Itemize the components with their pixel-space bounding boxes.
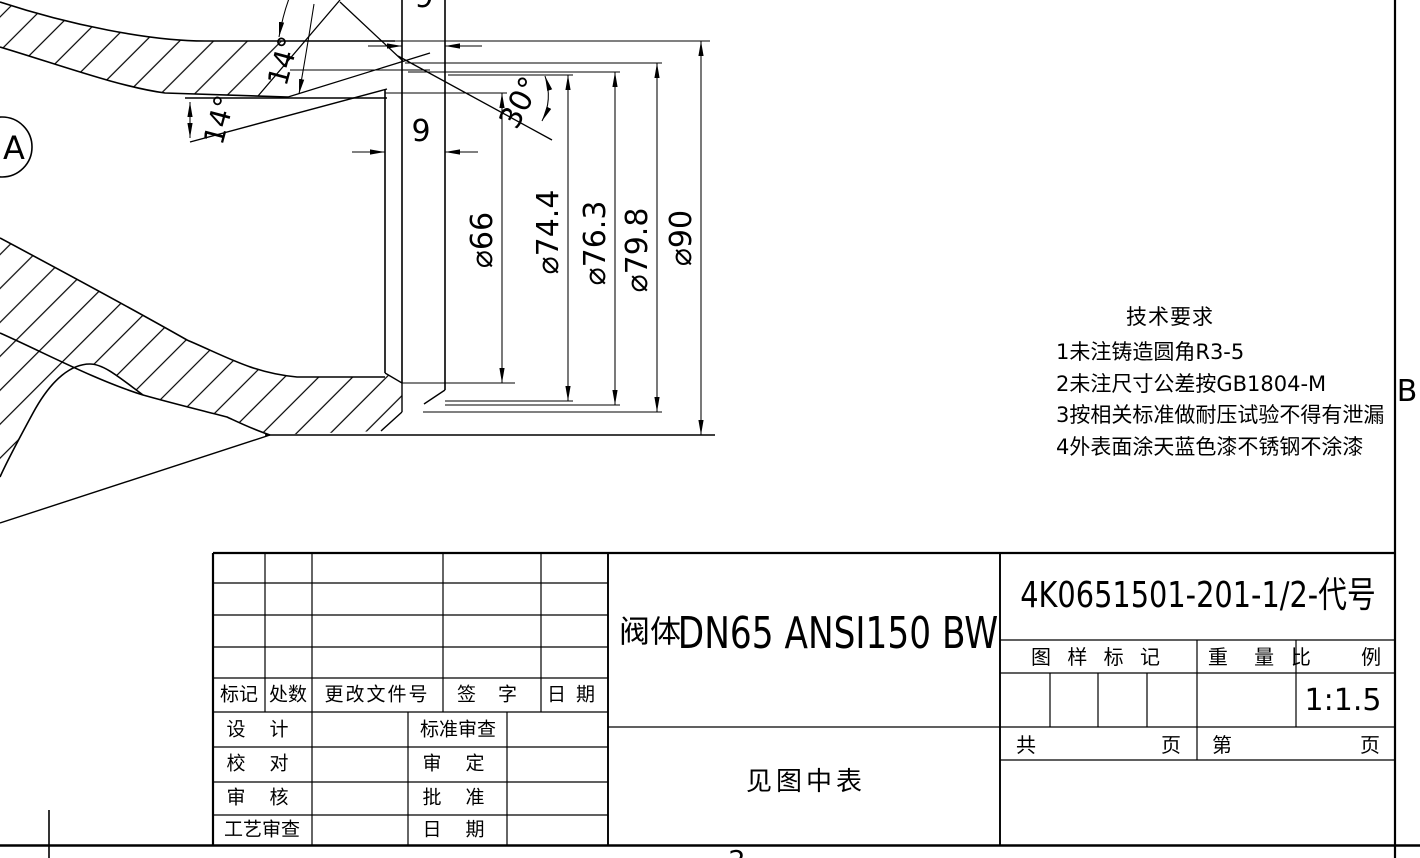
dim-dia90-label: ⌀90	[667, 210, 697, 266]
part-name-prefix: 阀体	[619, 618, 681, 649]
zone-number-bottom: 2	[728, 848, 745, 858]
revision-header-docno: 更改文件号	[324, 686, 429, 705]
pages-total-prefix: 共	[1016, 729, 1036, 758]
technical-requirement-item: 1未注铸造圆角R3-5	[1056, 337, 1401, 369]
drawing-number: 4K0651501-201-1/2-代号	[1020, 578, 1376, 614]
page-number-prefix: 第	[1212, 729, 1232, 758]
technical-requirement-item: 2未注尺寸公差按GB1804-M	[1056, 369, 1401, 401]
revision-header-date: 日 期	[547, 686, 597, 705]
revision-header-sign: 签 字	[457, 686, 525, 705]
dim-dia744-label: ⌀74.4	[534, 190, 564, 275]
dim-width-top-label: 9	[414, 0, 433, 13]
pages-total-suffix: 页	[1161, 729, 1181, 758]
dim-dia763-label: ⌀76.3	[581, 201, 611, 286]
scale-value: 1:1.5	[1305, 686, 1382, 716]
technical-requirement-item: 4外表面涂天蓝色漆不锈钢不涂漆	[1056, 432, 1401, 464]
sign-label-check: 校 对	[226, 755, 297, 774]
sign-label-design: 设 计	[226, 721, 297, 740]
stamp-header: 图 样 标 记	[1031, 647, 1165, 667]
technical-requirement-item: 3按相关标准做耐压试验不得有泄漏	[1056, 400, 1401, 432]
revision-header-count: 处数	[269, 686, 307, 705]
sign-label-approve-def: 审 定	[422, 755, 493, 774]
technical-requirements: 技术要求 1未注铸造圆角R3-5 2未注尺寸公差按GB1804-M 3按相关标准…	[1056, 301, 1401, 463]
page-number-cell: 第 页	[1197, 727, 1395, 760]
dim-dia798-label: ⌀79.8	[623, 208, 653, 293]
material-note: 见图中表	[746, 769, 866, 795]
dim-dia66-label: ⌀66	[468, 212, 498, 268]
scale-header: 比 例	[1291, 647, 1403, 667]
sign-label-std-review: 标准审查	[420, 721, 496, 740]
sign-label-process: 工艺审查	[224, 821, 300, 840]
pages-total-cell: 共 页	[1000, 727, 1197, 760]
detail-label-a: A	[3, 132, 25, 164]
weight-header: 重 量	[1208, 647, 1284, 667]
sign-label-audit: 审 核	[226, 789, 297, 808]
revision-header-mark: 标记	[220, 686, 258, 705]
dim-width-mid-label: 9	[411, 117, 430, 147]
sign-label-approve: 批 准	[422, 789, 493, 808]
sign-label-date: 日 期	[422, 821, 493, 840]
page-number-suffix: 页	[1360, 729, 1380, 758]
part-name: DN65 ANSI150 BW	[678, 612, 998, 656]
drawing-sheet: A B 2 9 9 14° 14° 30° ⌀66 ⌀74.4 ⌀76.3 ⌀7…	[0, 0, 1420, 858]
technical-requirements-title: 技术要求	[1056, 301, 1401, 331]
